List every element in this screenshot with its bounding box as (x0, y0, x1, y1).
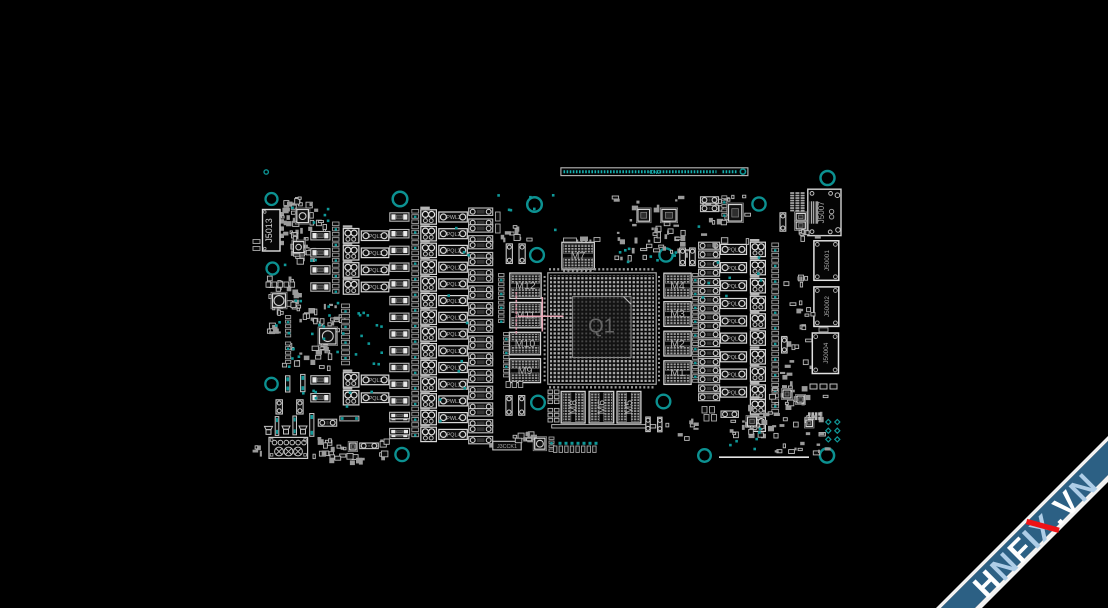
svg-text:J3CCK1: J3CCK1 (497, 444, 517, 450)
svg-text:M4: M4 (670, 280, 685, 292)
svg-text:M7: M7 (571, 250, 586, 262)
svg-text:PWL4: PWL4 (446, 416, 461, 422)
svg-text:Q1: Q1 (588, 316, 615, 338)
svg-text:PQL3: PQL3 (369, 251, 383, 257)
svg-text:M5: M5 (623, 400, 635, 415)
svg-text:M11: M11 (516, 309, 536, 321)
svg-text:PQL4: PQL4 (447, 433, 461, 439)
svg-text:J50001: J50001 (824, 250, 831, 271)
svg-text:M1: M1 (670, 367, 685, 379)
svg-text:CN2: CN2 (649, 170, 661, 176)
svg-text:M8: M8 (567, 400, 579, 415)
svg-text:PQL3: PQL3 (369, 268, 383, 274)
svg-text:PQL1: PQL1 (447, 282, 461, 288)
svg-text:M10: M10 (515, 338, 536, 350)
svg-text:M2: M2 (670, 338, 685, 350)
svg-text:PQL3: PQL3 (369, 396, 383, 402)
svg-text:PQL1: PQL1 (447, 349, 461, 355)
svg-text:PQL2: PQL2 (447, 232, 461, 238)
svg-text:M12: M12 (515, 280, 536, 292)
svg-text:M3: M3 (670, 308, 685, 320)
svg-text:PWL1: PWL1 (446, 399, 461, 405)
svg-text:J5013: J5013 (264, 218, 274, 243)
svg-text:M6: M6 (596, 400, 608, 415)
svg-text:PQL3: PQL3 (369, 285, 383, 291)
svg-text:PQL1: PQL1 (447, 299, 461, 305)
svg-text:PQL1: PQL1 (447, 382, 461, 388)
svg-text:J50002: J50002 (824, 296, 831, 317)
svg-text:PQL1: PQL1 (447, 316, 461, 322)
svg-text:M9: M9 (518, 365, 533, 377)
svg-text:PQL3: PQL3 (369, 234, 383, 240)
svg-text:J5007: J5007 (817, 201, 826, 223)
svg-text:PQL2: PQL2 (447, 265, 461, 271)
svg-text:J50004: J50004 (823, 342, 830, 363)
svg-text:PWL3: PWL3 (446, 215, 461, 221)
svg-text:PQL2: PQL2 (447, 249, 461, 255)
svg-text:PQL3: PQL3 (369, 378, 383, 384)
svg-text:PQL1: PQL1 (447, 332, 461, 338)
